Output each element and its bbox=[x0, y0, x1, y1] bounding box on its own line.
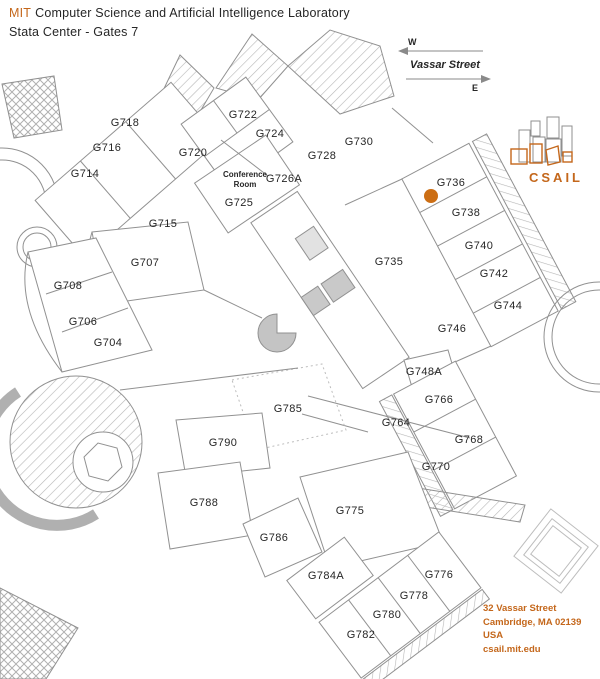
room-label: G707 bbox=[131, 257, 160, 269]
room-label: G735 bbox=[375, 256, 404, 268]
floorplan-drawing: W Vassar Street E CSAIL bbox=[0, 0, 600, 679]
room-label: G740 bbox=[465, 240, 494, 252]
room-label: G726A bbox=[266, 173, 302, 185]
room-label: G720 bbox=[179, 147, 208, 159]
room-label: G744 bbox=[494, 300, 523, 312]
street-name: Vassar Street bbox=[410, 59, 481, 71]
room-label: G782 bbox=[347, 629, 376, 641]
room-label: G780 bbox=[373, 609, 402, 621]
compass-east-label: E bbox=[472, 83, 478, 93]
roof-hatch-3 bbox=[288, 30, 394, 114]
room-label: G708 bbox=[54, 280, 83, 292]
room-label: G784A bbox=[308, 570, 344, 582]
room-label: G786 bbox=[260, 532, 289, 544]
room-label: G728 bbox=[308, 150, 337, 162]
location-marker-dot bbox=[424, 189, 438, 203]
csail-url-link[interactable]: csail.mit.edu bbox=[483, 643, 581, 657]
page-subtitle: Stata Center - Gates 7 bbox=[9, 25, 138, 39]
room-label: G746 bbox=[438, 323, 467, 335]
room-label: G716 bbox=[93, 142, 122, 154]
address-country: USA bbox=[483, 629, 581, 643]
room-label: G725 bbox=[225, 197, 254, 209]
room-label: G714 bbox=[71, 168, 100, 180]
compass: W Vassar Street E bbox=[398, 37, 491, 93]
csail-wordmark: CSAIL bbox=[529, 170, 583, 185]
central-corridor bbox=[251, 191, 409, 388]
room-label: G790 bbox=[209, 437, 238, 449]
room-label: G778 bbox=[400, 590, 429, 602]
room-label: G764 bbox=[382, 417, 411, 429]
address-city: Cambridge, MA 02139 bbox=[483, 616, 581, 630]
room-label: G736 bbox=[437, 177, 466, 189]
round-lecture-hall bbox=[0, 376, 142, 525]
lab-title: Computer Science and Artificial Intellig… bbox=[35, 6, 350, 20]
roof-crosshatch-topleft bbox=[2, 76, 62, 138]
room-label: G748A bbox=[406, 366, 442, 378]
address-street: 32 Vassar Street bbox=[483, 602, 581, 616]
room-label: G770 bbox=[422, 461, 451, 473]
room-label: G775 bbox=[336, 505, 365, 517]
room-label: G715 bbox=[149, 218, 178, 230]
building-geometry bbox=[0, 30, 600, 679]
csail-logo: CSAIL bbox=[511, 117, 583, 185]
room-label: G766 bbox=[425, 394, 454, 406]
floorplan-page: W Vassar Street E CSAIL bbox=[0, 0, 600, 679]
room-label: G776 bbox=[425, 569, 454, 581]
room-label: G724 bbox=[256, 128, 285, 140]
room-label: G788 bbox=[190, 497, 219, 509]
room-label: G722 bbox=[229, 109, 258, 121]
room-label: G706 bbox=[69, 316, 98, 328]
room-label: G742 bbox=[480, 268, 509, 280]
room-label: G704 bbox=[94, 337, 123, 349]
page-title: MITComputer Science and Artificial Intel… bbox=[9, 6, 350, 20]
room-label: G738 bbox=[452, 207, 481, 219]
room-label: G730 bbox=[345, 136, 374, 148]
roof-crosshatch-bottomleft bbox=[0, 588, 78, 679]
room-label: G785 bbox=[274, 403, 303, 415]
skylight-squares bbox=[514, 509, 598, 593]
mit-brand: MIT bbox=[9, 6, 31, 20]
west-arrow-icon bbox=[398, 47, 408, 55]
room-label: G718 bbox=[111, 117, 140, 129]
room-label: G768 bbox=[455, 434, 484, 446]
address-block: 32 Vassar Street Cambridge, MA 02139 USA… bbox=[483, 602, 581, 656]
spiral-stair bbox=[258, 314, 296, 352]
conference-room-label: Conference Room bbox=[223, 170, 267, 190]
east-arrow-icon bbox=[481, 75, 491, 83]
compass-west-label: W bbox=[408, 37, 417, 47]
